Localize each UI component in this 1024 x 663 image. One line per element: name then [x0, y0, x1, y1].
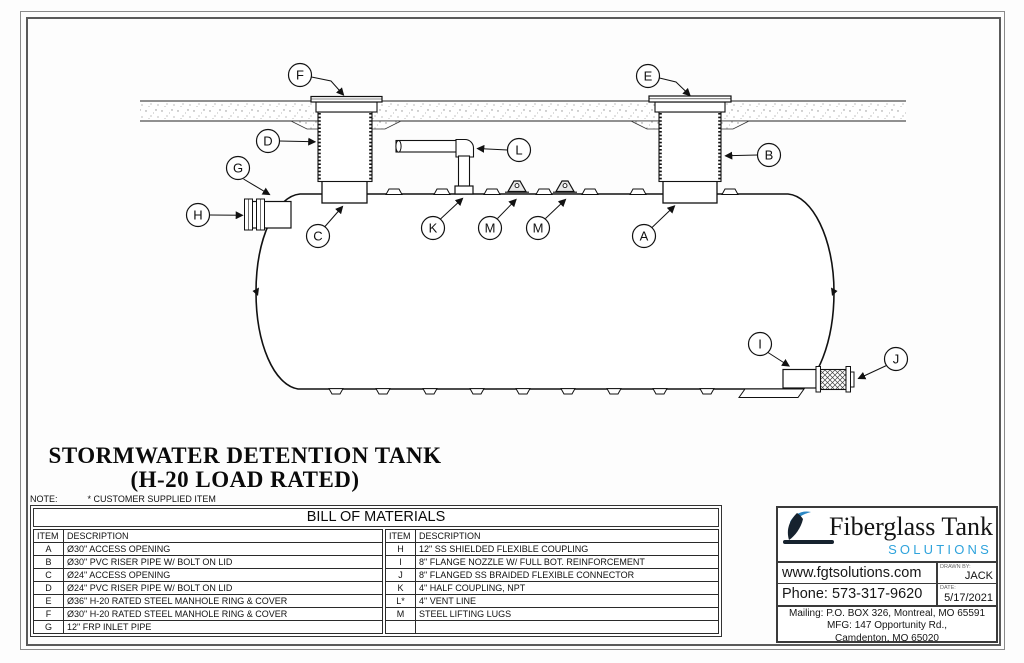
bom-col-desc: DESCRIPTION: [64, 530, 383, 543]
svg-text:J: J: [893, 352, 900, 367]
callout-m-1: M: [479, 217, 502, 240]
drawing-sheet: { "drawing": { "title_line1": "STORMWATE…: [0, 0, 1024, 663]
company-logo: Fiberglass Tank SOLUTIONS: [778, 508, 996, 561]
svg-text:K: K: [429, 221, 438, 236]
svg-text:F: F: [296, 68, 304, 83]
bom-row: I8" FLANGE NOZZLE W/ FULL BOT. REINFORCE…: [386, 556, 719, 569]
leader-d: [280, 141, 316, 142]
callout-l: L: [508, 139, 531, 162]
leader-g: [244, 179, 270, 195]
leader-f: [312, 77, 344, 95]
svg-text:G: G: [233, 161, 243, 176]
company-phone: Phone: 573-317-9620: [778, 584, 938, 605]
callout-b: B: [758, 144, 781, 167]
bom-header-row: ITEM DESCRIPTION: [34, 530, 383, 543]
leader-l: [478, 149, 508, 151]
lifting-lug: [505, 181, 529, 194]
drawing-title-line1: STORMWATER DETENTION TANK: [30, 444, 460, 468]
address-line-1: Mailing: P.O. BOX 326, Montreal, MO 6559…: [778, 608, 996, 620]
vent-line: [396, 140, 474, 195]
svg-text:M: M: [485, 221, 496, 236]
bom-col-item: ITEM: [386, 530, 416, 543]
bom-table-right: ITEM DESCRIPTION H12" SS SHIELDED FLEXIB…: [385, 529, 719, 634]
bom-header-row: ITEM DESCRIPTION: [386, 530, 719, 543]
date-value: 5/17/2021: [944, 592, 993, 604]
bom-col-item: ITEM: [34, 530, 64, 543]
bom-title: BILL OF MATERIALS: [33, 508, 719, 527]
bom-row: EØ36" H-20 RATED STEEL MANHOLE RING & CO…: [34, 595, 383, 608]
svg-text:D: D: [263, 134, 272, 149]
bom-row: FØ30" H-20 RATED STEEL MANHOLE RING & CO…: [34, 608, 383, 621]
title-block-contact-grid: www.fgtsolutions.com DRAWN BY: JACK Phon…: [778, 561, 996, 605]
callout-i: I: [749, 333, 772, 356]
callout-a: A: [633, 225, 656, 248]
date-label: DATE:: [940, 585, 956, 591]
inlet-pipe: [245, 199, 292, 230]
callout-e: E: [637, 65, 660, 88]
bom-table-left: ITEM DESCRIPTION AØ30" ACCESS OPENING BØ…: [33, 529, 383, 634]
bom-row: G12" FRP INLET PIPE: [34, 621, 383, 634]
note: NOTE: * CUSTOMER SUPPLIED ITEM: [30, 494, 216, 504]
note-label: NOTE:: [30, 494, 85, 504]
bom-row: DØ24" PVC RISER PIPE W/ BOLT ON LID: [34, 582, 383, 595]
company-tagline: SOLUTIONS: [888, 542, 992, 557]
callout-g: G: [227, 157, 250, 180]
drawn-by-value: JACK: [965, 570, 993, 582]
callout-k: K: [422, 217, 445, 240]
svg-text:E: E: [644, 69, 653, 84]
bill-of-materials: BILL OF MATERIALS ITEM DESCRIPTION AØ30"…: [30, 505, 722, 637]
address-line-2: MFG: 147 Opportunity Rd.,: [778, 620, 996, 632]
leader-j: [859, 366, 887, 379]
svg-text:A: A: [640, 229, 649, 244]
company-website[interactable]: www.fgtsolutions.com: [778, 563, 938, 584]
callout-d: D: [257, 130, 280, 153]
drawn-by-cell: DRAWN BY: JACK: [938, 563, 996, 584]
bom-row: [386, 621, 719, 634]
svg-text:B: B: [765, 148, 774, 163]
bom-row: L*4" VENT LINE: [386, 595, 719, 608]
address-line-3: Camdenton, MO 65020: [778, 633, 996, 645]
callout-h: H: [187, 204, 210, 227]
callout-f: F: [289, 64, 312, 87]
callout-j: J: [885, 348, 908, 371]
leader-b: [726, 155, 758, 156]
date-cell: DATE: 5/17/2021: [938, 584, 996, 605]
bom-row: AØ30" ACCESS OPENING: [34, 543, 383, 556]
bom-row: J8" FLANGED SS BRAIDED FLEXIBLE CONNECTO…: [386, 569, 719, 582]
note-text: * CUSTOMER SUPPLIED ITEM: [88, 494, 216, 504]
bom-row: MSTEEL LIFTING LUGS: [386, 608, 719, 621]
svg-text:M: M: [533, 221, 544, 236]
company-name: Fiberglass Tank: [812, 512, 993, 542]
bom-row: CØ24" ACCESS OPENING: [34, 569, 383, 582]
bom-row: BØ30" PVC RISER PIPE W/ BOLT ON LID: [34, 556, 383, 569]
tank-bottom-ribs: [329, 389, 714, 394]
bom-col-desc: DESCRIPTION: [416, 530, 719, 543]
svg-text:L: L: [515, 143, 522, 158]
svg-text:H: H: [193, 208, 202, 223]
logo-underline: [783, 540, 834, 544]
company-address: Mailing: P.O. BOX 326, Montreal, MO 6559…: [778, 605, 996, 645]
callout-m-2: M: [527, 217, 550, 240]
callout-c: C: [307, 225, 330, 248]
leader-e: [660, 78, 691, 96]
grade-line: [140, 101, 906, 129]
drawing-title: STORMWATER DETENTION TANK (H-20 LOAD RAT…: [30, 444, 460, 492]
title-block: Fiberglass Tank SOLUTIONS www.fgtsolutio…: [776, 506, 998, 643]
drawing-title-line2: (H-20 LOAD RATED): [30, 468, 460, 492]
svg-text:I: I: [758, 337, 762, 352]
lifting-lug: [553, 181, 577, 194]
manhole-left: [311, 97, 382, 204]
svg-text:C: C: [313, 229, 322, 244]
manhole-right: [649, 96, 731, 203]
bom-row: K4" HALF COUPLING, NPT: [386, 582, 719, 595]
bom-row: H12" SS SHIELDED FLEXIBLE COUPLING: [386, 543, 719, 556]
